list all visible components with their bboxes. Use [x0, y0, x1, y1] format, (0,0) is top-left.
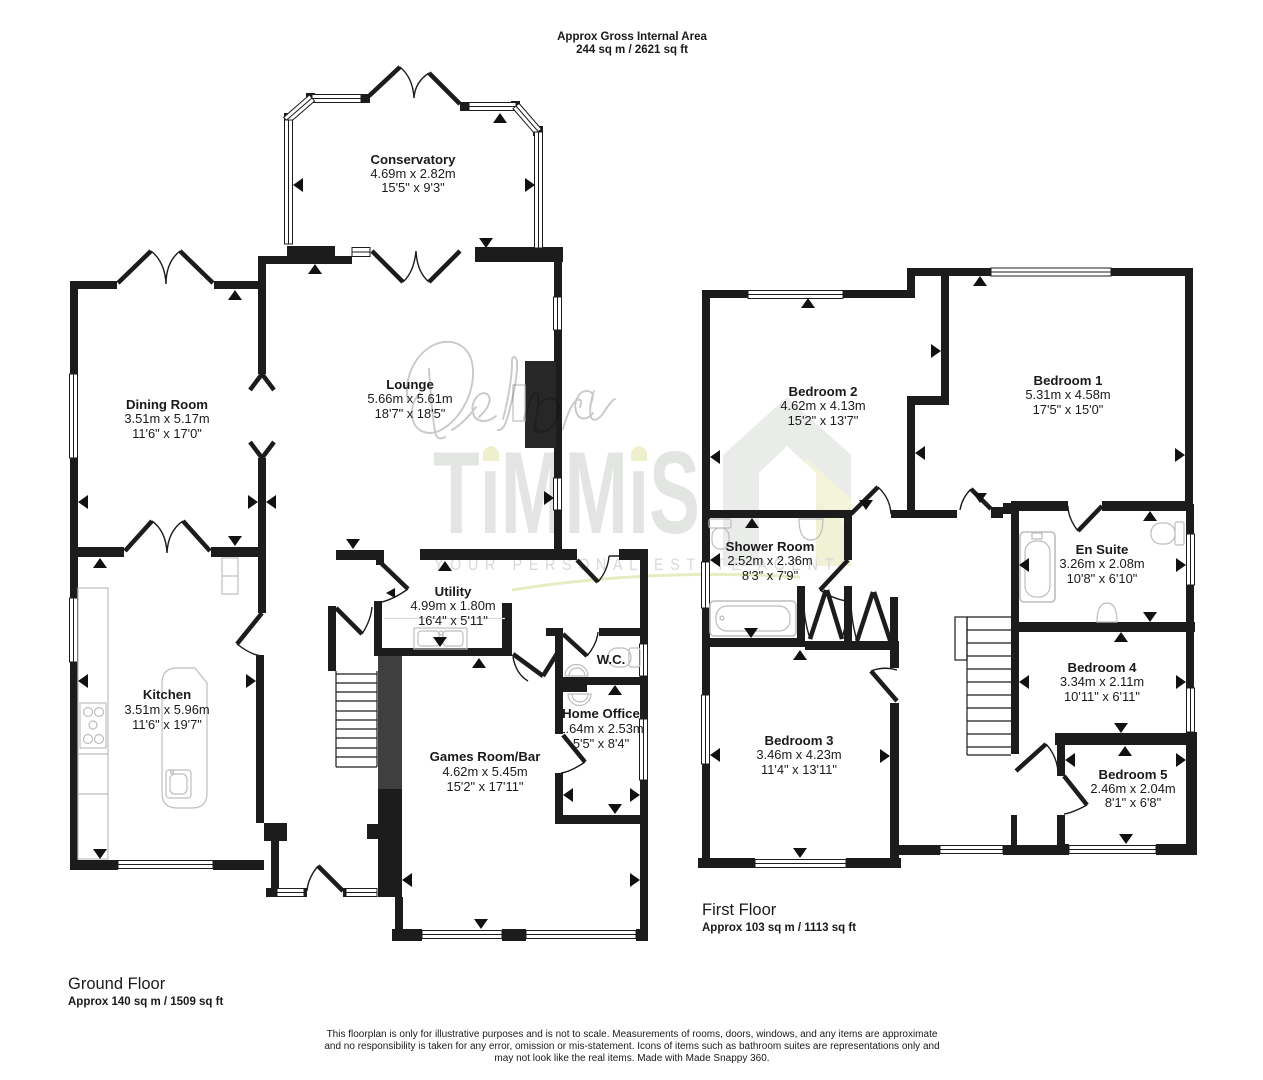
- svg-text:3.51m x 5.96m: 3.51m x 5.96m: [124, 702, 209, 717]
- svg-text:15'5" x 9'3": 15'5" x 9'3": [381, 180, 445, 195]
- svg-text:3.51m x 5.17m: 3.51m x 5.17m: [124, 411, 209, 426]
- svg-text:18'7" x 18'5": 18'7" x 18'5": [375, 406, 446, 421]
- svg-text:4.62m x 4.13m: 4.62m x 4.13m: [780, 398, 865, 413]
- svg-text:Utility: Utility: [435, 584, 472, 599]
- svg-text:1.64m x 2.53m: 1.64m x 2.53m: [558, 721, 643, 736]
- svg-text:3.26m x 2.08m: 3.26m x 2.08m: [1059, 556, 1144, 571]
- svg-text:16'4" x 5'11": 16'4" x 5'11": [418, 613, 488, 628]
- svg-text:5.31m x 4.58m: 5.31m x 4.58m: [1025, 387, 1110, 402]
- svg-text:5'5" x 8'4": 5'5" x 8'4": [573, 736, 630, 751]
- svg-text:This floorplan is only for ill: This floorplan is only for illustrative …: [327, 1029, 938, 1040]
- svg-text:2.52m x 2.36m: 2.52m x 2.36m: [727, 553, 812, 568]
- svg-text:17'5" x 15'0": 17'5" x 15'0": [1033, 402, 1104, 417]
- svg-text:Dining Room: Dining Room: [126, 397, 208, 412]
- svg-text:11'4" x 13'11": 11'4" x 13'11": [761, 762, 837, 777]
- svg-text:may not look like the real ite: may not look like the real items. Made w…: [494, 1053, 769, 1064]
- svg-text:and no responsibility is taken: and no responsibility is taken for any e…: [324, 1041, 939, 1052]
- svg-text:5.66m x 5.61m: 5.66m x 5.61m: [367, 391, 452, 406]
- svg-text:Conservatory: Conservatory: [370, 152, 456, 167]
- svg-text:En Suite: En Suite: [1076, 542, 1129, 557]
- svg-text:2.46m x 2.04m: 2.46m x 2.04m: [1090, 781, 1175, 796]
- svg-text:Bedroom 4: Bedroom 4: [1068, 660, 1138, 675]
- svg-text:3.46m x 4.23m: 3.46m x 4.23m: [756, 747, 841, 762]
- svg-text:4.99m x 1.80m: 4.99m x 1.80m: [410, 598, 495, 613]
- svg-text:3.34m x 2.11m: 3.34m x 2.11m: [1060, 674, 1144, 689]
- svg-text:Bedroom 2: Bedroom 2: [789, 384, 858, 399]
- svg-text:8'3" x 7'9": 8'3" x 7'9": [742, 568, 799, 583]
- svg-text:Ground Floor: Ground Floor: [68, 975, 166, 993]
- svg-text:Bedroom 5: Bedroom 5: [1099, 767, 1168, 782]
- svg-text:15'2" x 13'7": 15'2" x 13'7": [788, 413, 859, 428]
- svg-text:15'2" x 17'11": 15'2" x 17'11": [447, 779, 524, 794]
- svg-text:Approx 103 sq m / 1113 sq ft: Approx 103 sq m / 1113 sq ft: [702, 922, 856, 934]
- svg-text:Games Room/Bar: Games Room/Bar: [430, 749, 541, 764]
- svg-text:244 sq m / 2621 sq ft: 244 sq m / 2621 sq ft: [576, 44, 688, 56]
- svg-text:First Floor: First Floor: [702, 901, 777, 919]
- svg-text:11'6" x 19'7": 11'6" x 19'7": [132, 717, 202, 732]
- svg-text:Kitchen: Kitchen: [143, 687, 191, 702]
- svg-text:W.C.: W.C.: [597, 652, 626, 667]
- svg-text:Bedroom 1: Bedroom 1: [1034, 373, 1103, 388]
- svg-text:Bedroom 3: Bedroom 3: [765, 733, 834, 748]
- svg-text:4.69m x 2.82m: 4.69m x 2.82m: [370, 166, 455, 181]
- svg-text:10'11" x 6'11": 10'11" x 6'11": [1064, 689, 1140, 704]
- svg-text:Approx 140 sq m / 1509 sq ft: Approx 140 sq m / 1509 sq ft: [68, 996, 223, 1008]
- svg-text:4.62m x 5.45m: 4.62m x 5.45m: [442, 764, 527, 779]
- svg-text:Approx Gross Internal Area: Approx Gross Internal Area: [557, 31, 707, 43]
- svg-text:Home Office: Home Office: [562, 706, 640, 721]
- svg-text:TıMMıS: TıMMıS: [433, 427, 700, 558]
- svg-text:8'1" x 6'8": 8'1" x 6'8": [1105, 795, 1162, 810]
- svg-text:10'8" x 6'10": 10'8" x 6'10": [1067, 571, 1138, 586]
- svg-text:11'6" x 17'0": 11'6" x 17'0": [132, 426, 202, 441]
- svg-text:Lounge: Lounge: [386, 377, 434, 392]
- svg-text:Shower Room: Shower Room: [726, 539, 815, 554]
